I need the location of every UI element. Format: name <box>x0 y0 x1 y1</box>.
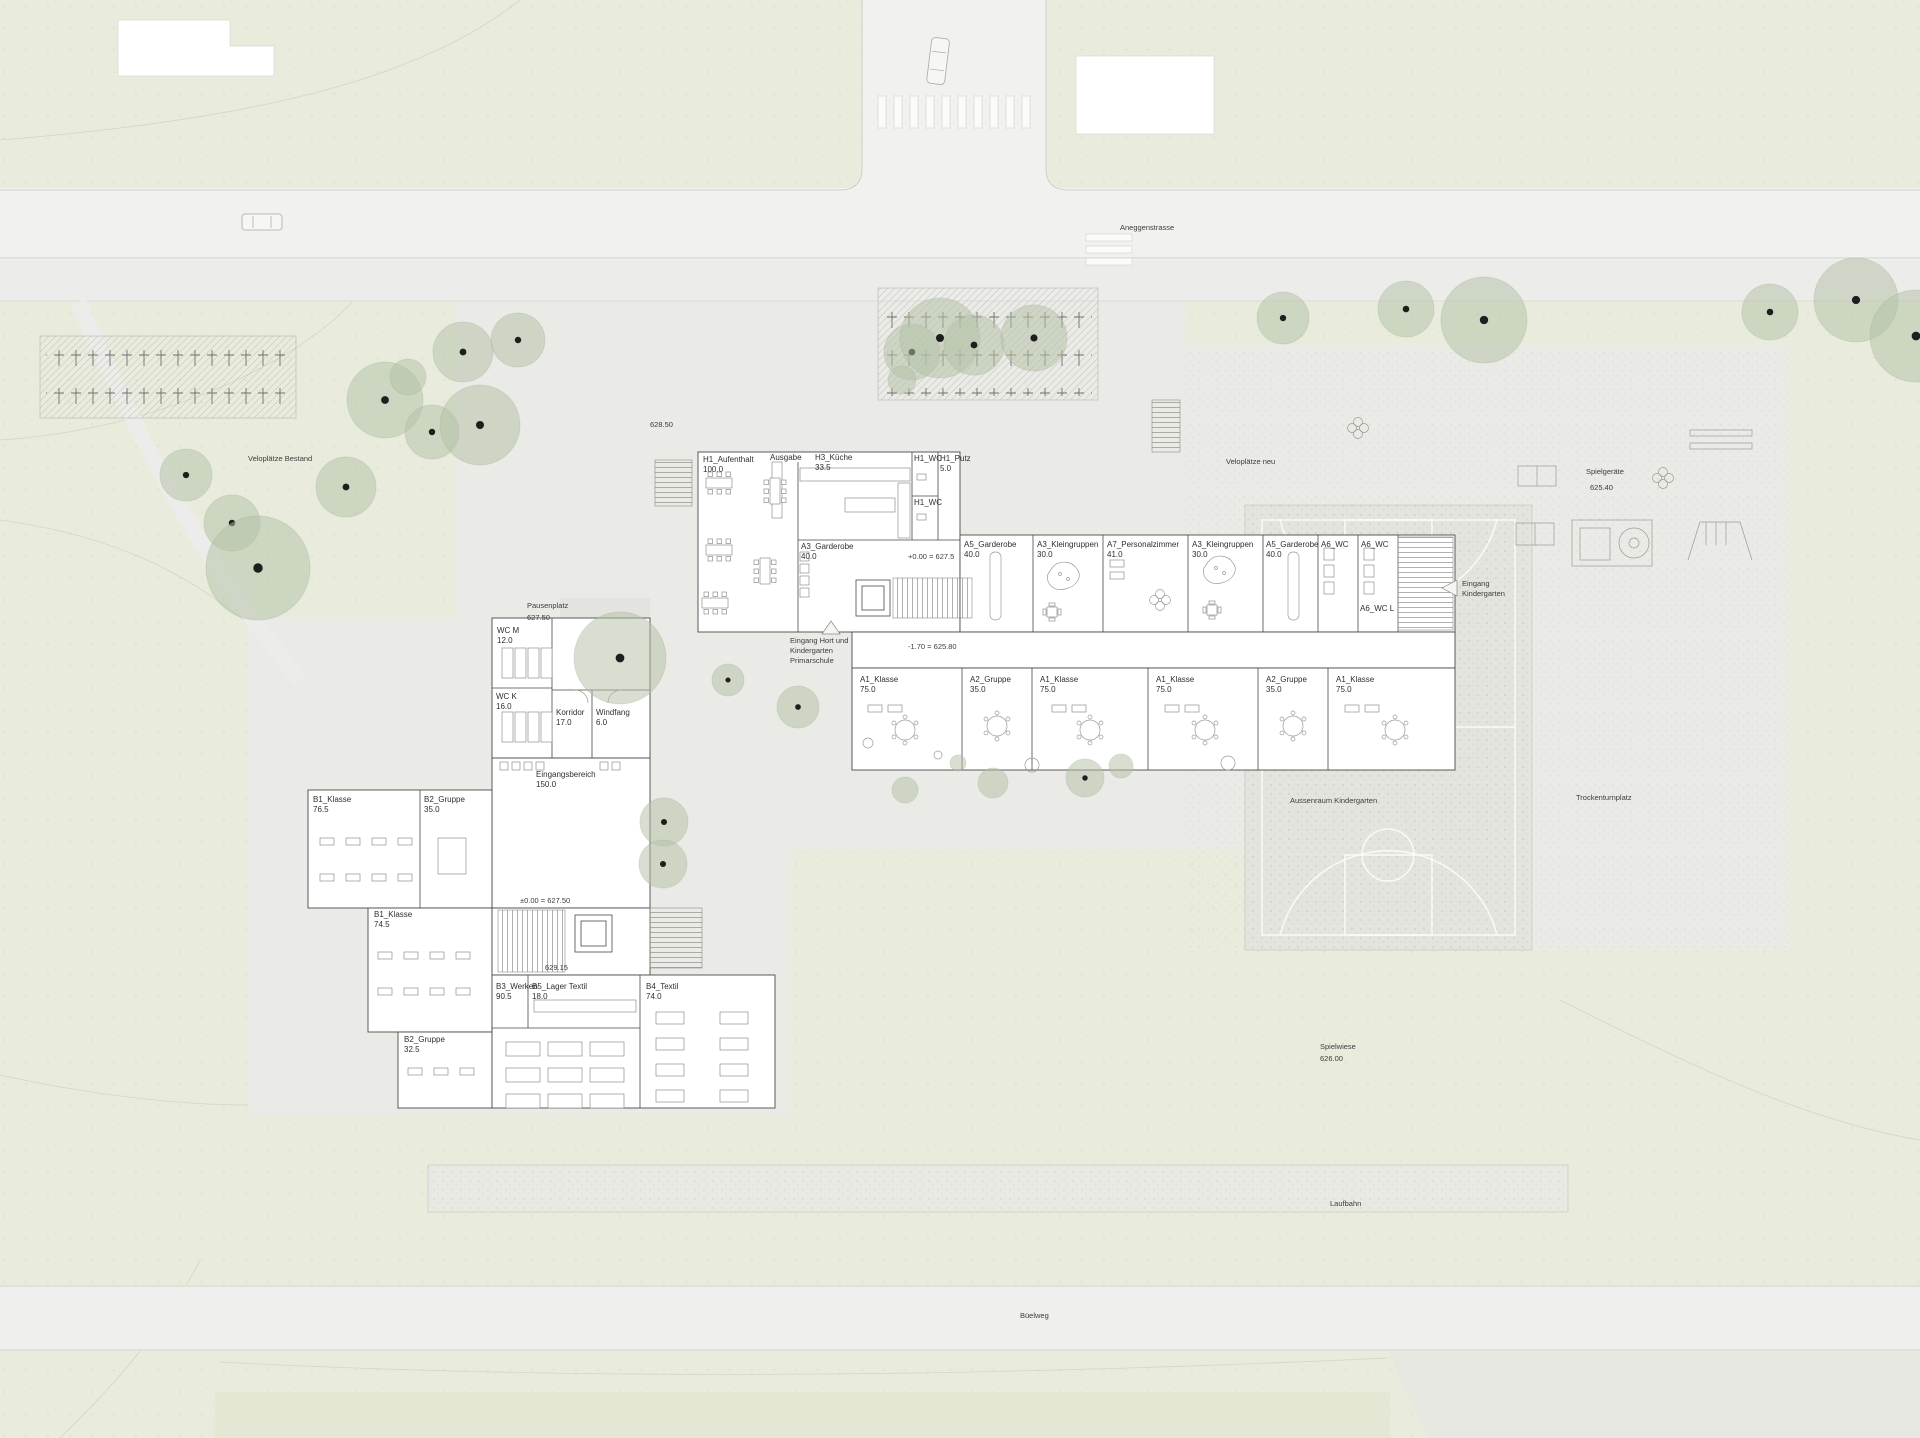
stair-road <box>655 460 692 506</box>
tree-trunk-icon <box>476 421 484 429</box>
tree-trunk-icon <box>1852 296 1860 304</box>
room-label: A1_Klasse <box>860 675 899 684</box>
tree-icon <box>950 755 966 771</box>
label-eingang-kiga-2: Kindergarten <box>1462 589 1505 598</box>
room-label: WC K <box>496 692 518 701</box>
room-label: B1_Klasse <box>374 910 413 919</box>
room-area: 35.0 <box>1266 685 1282 694</box>
room-area: 5.0 <box>940 464 952 473</box>
tree-trunk-icon <box>343 484 350 491</box>
bike-parking-existing <box>40 336 296 418</box>
room-label: B4_Textil <box>646 982 679 991</box>
room-area: 40.0 <box>1266 550 1282 559</box>
tree-icon <box>978 768 1008 798</box>
room-label: A2_Gruppe <box>1266 675 1307 684</box>
room-area: 6.0 <box>596 718 608 727</box>
room-label: A1_Klasse <box>1336 675 1375 684</box>
room-label: Eingangsbereich <box>536 770 596 779</box>
room-area: 35.0 <box>970 685 986 694</box>
tree-trunk-icon <box>515 337 521 343</box>
tree-trunk-icon <box>660 861 666 867</box>
room-area: 16.0 <box>496 702 512 711</box>
label-eingang-kiga: Eingang <box>1462 579 1490 588</box>
room-label: H3_Küche <box>815 453 853 462</box>
tree-trunk-icon <box>616 654 625 663</box>
room-label: Windfang <box>596 708 630 717</box>
room-label: A6_WC <box>1321 540 1349 549</box>
tree-trunk-icon <box>795 704 801 710</box>
room-area: 18.0 <box>532 992 548 1001</box>
neighbour-building <box>1076 56 1214 134</box>
tree-trunk-icon <box>253 563 262 572</box>
room-area: 75.0 <box>860 685 876 694</box>
room-area: 74.5 <box>374 920 390 929</box>
street-label-top: Aneggenstrasse <box>1120 223 1174 232</box>
label-pausenplatz-elev: 627.50 <box>527 613 550 622</box>
tree-trunk-icon <box>1480 316 1488 324</box>
room-area: 75.0 <box>1040 685 1056 694</box>
room-label: A1_Klasse <box>1040 675 1079 684</box>
site-plan: Aneggenstrasse <box>0 0 1920 1438</box>
room-label: A3_Garderobe <box>801 542 854 551</box>
room-label: B1_Klasse <box>313 795 352 804</box>
stair-playground <box>1152 400 1180 452</box>
room-area: 32.5 <box>404 1045 420 1054</box>
tree-trunk-icon <box>971 342 978 349</box>
label-spielgeraete-elev: 625.40 <box>1590 483 1613 492</box>
label-buelweg: Büelweg <box>1020 1311 1049 1320</box>
room-area: 30.0 <box>1037 550 1053 559</box>
label-trockenturnplatz: Trockenturnplatz <box>1576 793 1632 802</box>
label-eingang-hort: Eingang Hort und <box>790 636 848 645</box>
room-area: 74.0 <box>646 992 662 1001</box>
tree-trunk-icon <box>1403 306 1410 313</box>
label-spielwiese-elev: 626.00 <box>1320 1054 1343 1063</box>
tree-icon <box>892 777 918 803</box>
room-area: 41.0 <box>1107 550 1123 559</box>
tree-trunk-icon <box>183 472 189 478</box>
room-area: 40.0 <box>801 552 817 561</box>
room-label: A1_Klasse <box>1156 675 1195 684</box>
room-area: 75.0 <box>1156 685 1172 694</box>
label-velo-neu: Veloplätze neu <box>1226 457 1275 466</box>
label-spielwiese: Spielwiese <box>1320 1042 1356 1051</box>
room-area: 90.5 <box>496 992 512 1001</box>
label-pausenplatz: Pausenplatz <box>527 601 569 610</box>
room-area: 30.0 <box>1192 550 1208 559</box>
tree-trunk-icon <box>1767 309 1774 316</box>
room-area: 17.0 <box>556 718 572 727</box>
room-label: H1_WC <box>914 498 942 507</box>
room-label: B2_Gruppe <box>424 795 465 804</box>
tree-trunk-icon <box>936 334 944 342</box>
tree-trunk-icon <box>1280 315 1286 321</box>
room-label: A6_WC <box>1361 540 1389 549</box>
stair-core-upper <box>893 578 972 618</box>
label-velo-bestand: Veloplätze Bestand <box>248 454 312 463</box>
room-label: B5_Lager Textil <box>532 982 587 991</box>
room-label: H1_Putz <box>940 454 971 463</box>
crosswalk-right <box>1086 234 1132 265</box>
car-icon <box>242 214 282 230</box>
label-elev-upper: +0.00 = 627.5 <box>908 552 954 561</box>
room-area: 12.0 <box>497 636 513 645</box>
room-label: A2_Gruppe <box>970 675 1011 684</box>
kitchen-counter <box>898 483 910 538</box>
room-label: A5_Garderobe <box>964 540 1017 549</box>
bottom-road <box>0 1285 1920 1351</box>
stair-wing-east <box>1398 537 1453 630</box>
tree-icon <box>1109 754 1133 778</box>
room-label: WC M <box>497 626 520 635</box>
room-label: A6_WC L <box>1360 604 1395 613</box>
room-label: B2_Gruppe <box>404 1035 445 1044</box>
tree-icon <box>390 359 426 395</box>
tree-trunk-icon <box>661 819 667 825</box>
room-label: H1_WC <box>914 454 942 463</box>
room-area: 76.5 <box>313 805 329 814</box>
label-spot-elev: 628.50 <box>650 420 673 429</box>
green-strip <box>215 1392 1390 1438</box>
room-area: 150.0 <box>536 780 557 789</box>
tree-trunk-icon <box>725 677 730 682</box>
room-label: A3_Kleingruppen <box>1192 540 1253 549</box>
room-label: A3_Kleingruppen <box>1037 540 1098 549</box>
room-area: 35.0 <box>424 805 440 814</box>
label-spielgeraete: Spielgeräte <box>1586 467 1624 476</box>
entry-hall <box>492 758 650 908</box>
room-area: 100.0 <box>703 465 724 474</box>
label-laufbahn: Laufbahn <box>1330 1199 1361 1208</box>
group-table <box>438 838 466 874</box>
label-elev-school: ±0.00 = 627.50 <box>520 896 570 905</box>
paved-corner <box>1388 1352 1920 1438</box>
stair-exterior <box>650 908 702 968</box>
room-area: 75.0 <box>1336 685 1352 694</box>
tree-trunk-icon <box>381 396 389 404</box>
room-area: 40.0 <box>964 550 980 559</box>
storage-shelf <box>534 1000 636 1012</box>
tree-trunk-icon <box>429 429 435 435</box>
room-label: Korridor <box>556 708 585 717</box>
tree-trunk-icon <box>1030 334 1037 341</box>
room-label: A5_Garderobe <box>1266 540 1319 549</box>
label-aussenraum: Aussenraum Kindergarten <box>1290 796 1377 805</box>
tree-trunk-icon <box>1082 775 1087 780</box>
running-track <box>428 1165 1568 1212</box>
kitchen-island <box>845 498 895 512</box>
room-label: H1_Aufenthalt <box>703 455 754 464</box>
label-eingang-hort-2: Kindergarten <box>790 646 833 655</box>
label-elev-school-2: 629.15 <box>545 963 568 972</box>
room-label: Ausgabe <box>770 453 802 462</box>
label-eingang-hort-3: Primarschule <box>790 656 834 665</box>
room-area: 33.5 <box>815 463 831 472</box>
tree-trunk-icon <box>1912 332 1920 341</box>
room-label: A7_Personalzimmer <box>1107 540 1179 549</box>
label-elev-lower: -1.70 = 625.80 <box>908 642 957 651</box>
tree-trunk-icon <box>460 349 467 356</box>
tree-icon <box>888 366 916 394</box>
